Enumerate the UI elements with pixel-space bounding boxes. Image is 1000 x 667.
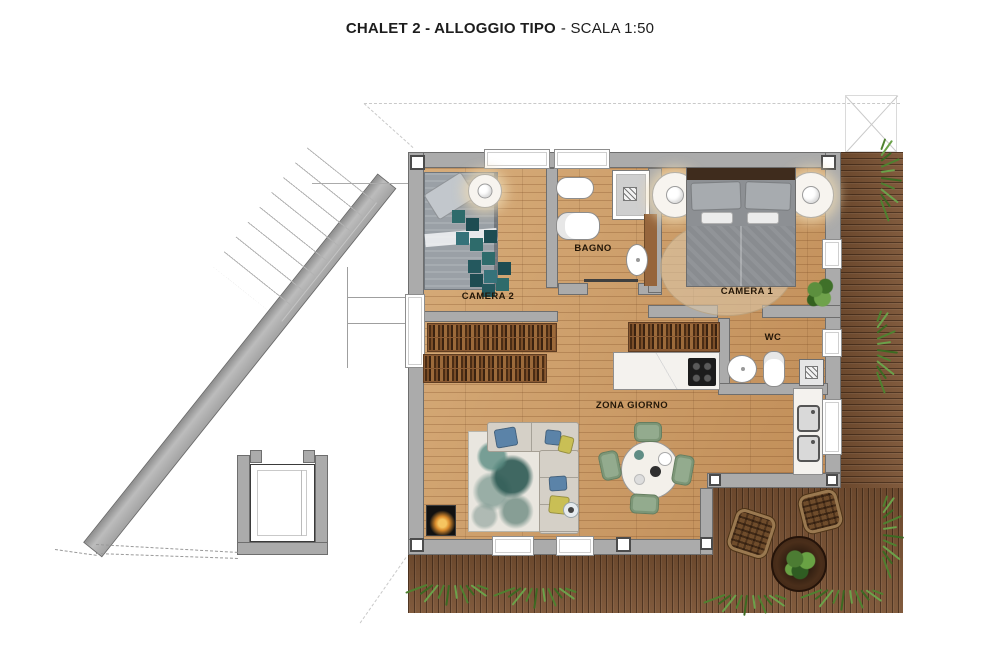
toilet [556,212,600,240]
side-table [563,502,579,518]
wall-post [821,155,836,170]
title-scale: - SCALA 1:50 [561,20,654,37]
headboard [687,168,795,180]
dashed-reference-line [55,549,97,556]
grass-tuft [881,143,915,207]
bookshelf [423,354,547,383]
shaft-wall [237,542,328,555]
sofa [487,422,579,534]
door-left [405,294,425,368]
ceiling-lamp [468,174,502,208]
door-to-deck [822,399,842,455]
shaft-inner-line [257,470,307,536]
roof-outline-diagonal [364,103,414,148]
room-label-zona-giorno: ZONA GIORNO [588,400,676,411]
grass-tuft [883,500,917,564]
shaft-inner-line [301,470,302,536]
wall-post [826,474,838,486]
sofa-chaise [539,450,579,534]
shower-drain-icon [623,187,637,201]
door-leaf-bagno [584,279,638,282]
shaft-notch [303,450,315,463]
partition-bagno-south [558,283,588,295]
bookshelf [427,323,557,352]
wc-toilet [763,351,785,387]
dining-chair [629,493,659,514]
sofa-pillow [494,426,519,449]
window [822,239,842,269]
washer-drum-icon [805,366,818,379]
partition-camera2 [424,311,558,322]
grass-tuft [718,595,782,629]
shaft-wall [237,455,250,555]
pixel-rug [452,210,465,223]
wc-sink [727,355,757,383]
lamp-bulb [666,186,684,204]
grass-tuft [508,588,572,622]
shaft-notch [250,450,262,463]
shelf-books [630,324,718,336]
drawing-title: CHALET 2 - ALLOGGIO TIPO- SCALA 1:50 [346,20,654,37]
window [822,329,842,357]
room-label-bagno: BAGNO [560,243,626,254]
dining-table [621,441,679,499]
grass-tuft [815,590,879,624]
shaft-wall [315,455,328,555]
kitchen-sink [797,405,820,432]
grass-tuft [877,315,911,379]
grass-tuft [420,585,484,619]
title-main: CHALET 2 - ALLOGGIO TIPO [346,20,556,37]
window [554,149,610,169]
dining-chair [634,422,662,442]
bath-sink [626,244,648,276]
dashed-roof-edge [360,557,407,623]
sheet-fold [425,228,498,247]
lamp-bulb [802,186,820,204]
window [492,536,534,556]
dashed-reference-line [96,544,238,553]
bidet [556,177,594,199]
fireplace-stove [426,505,456,536]
shower [612,170,650,220]
shelf-books [429,338,555,350]
shaft-structure [237,450,328,555]
window [556,536,594,556]
lamp-bulb [478,184,493,199]
stair-landing-line [347,297,408,298]
washing-machine [799,359,824,386]
cushion [747,212,779,224]
shelf-books [630,337,718,349]
room-label-camera2: CAMERA 2 [448,291,528,302]
cushion [701,212,733,224]
shelf-books [429,325,555,337]
kitchen-sink [797,435,820,462]
cooktop [688,358,716,386]
table-plant [783,547,817,581]
wall-post [616,537,631,552]
wall-post [700,537,713,550]
floor-plan-canvas: CAMERA 2 BAGNO CAMERA 1 WC ZONA GIORNO C… [0,0,1000,667]
stair-landing-line [347,267,348,368]
bed-camera1 [686,167,796,287]
stair-landing-line [347,323,408,324]
sofa-pillow [548,475,567,491]
wall-post [709,474,721,486]
wall-post [410,538,424,552]
potted-plant [806,276,836,310]
pillow [691,181,742,211]
roof-outline-line [364,103,900,104]
shelf-books [425,356,545,368]
shelf-books [425,369,545,381]
room-label-wc: WC [757,332,789,343]
kitchen-shelf [628,322,720,352]
pillow [745,181,792,211]
kitchen-counter [613,352,720,390]
exterior-wall-top [408,152,841,168]
room-label-camera1: CAMERA 1 [707,286,787,297]
dashed-reference-line [96,553,238,559]
window [484,149,550,169]
exterior-wall-bottom-right [707,473,841,488]
connection-line [312,183,408,184]
duvet [687,226,795,286]
wall-post [410,155,425,170]
